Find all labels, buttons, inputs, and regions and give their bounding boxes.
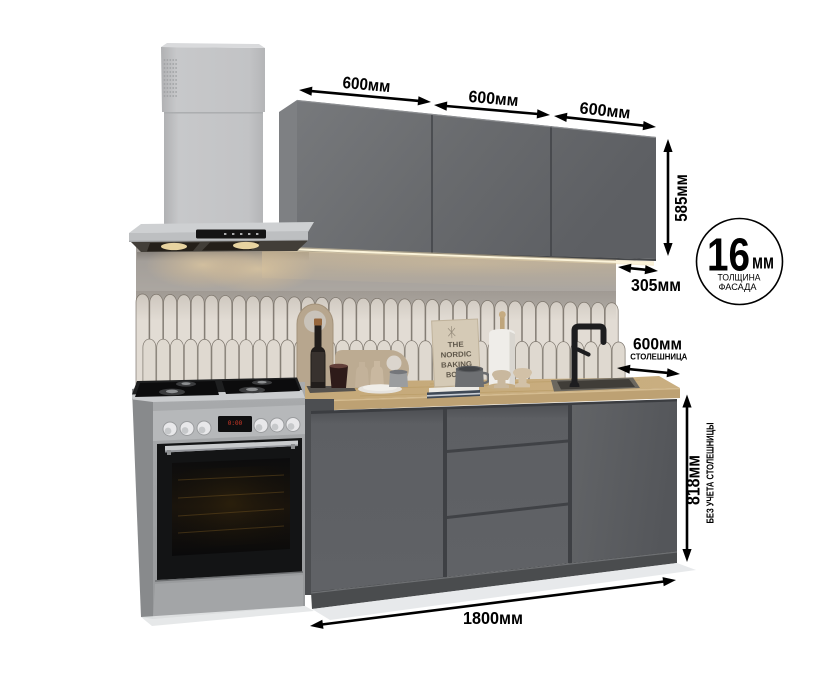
- svg-text:THE: THE: [447, 340, 463, 350]
- svg-text:NORDIC: NORDIC: [440, 349, 472, 359]
- svg-text:818мм: 818мм: [683, 455, 704, 505]
- svg-text:585мм: 585мм: [671, 174, 691, 222]
- svg-text:СТОЛЕШНИЦА: СТОЛЕШНИЦА: [630, 352, 687, 362]
- svg-text:БЕЗ УЧЕТА СТОЛЕШНИЦЫ: БЕЗ УЧЕТА СТОЛЕШНИЦЫ: [705, 423, 717, 524]
- svg-text:0:00: 0:00: [228, 420, 243, 427]
- svg-text:ТОЛЩИНА: ТОЛЩИНА: [718, 272, 761, 282]
- svg-text:1800мм: 1800мм: [463, 608, 523, 628]
- svg-text:305мм: 305мм: [631, 275, 681, 295]
- svg-text:ФАСАДА: ФАСАДА: [719, 282, 757, 292]
- svg-text:мм: мм: [752, 251, 774, 273]
